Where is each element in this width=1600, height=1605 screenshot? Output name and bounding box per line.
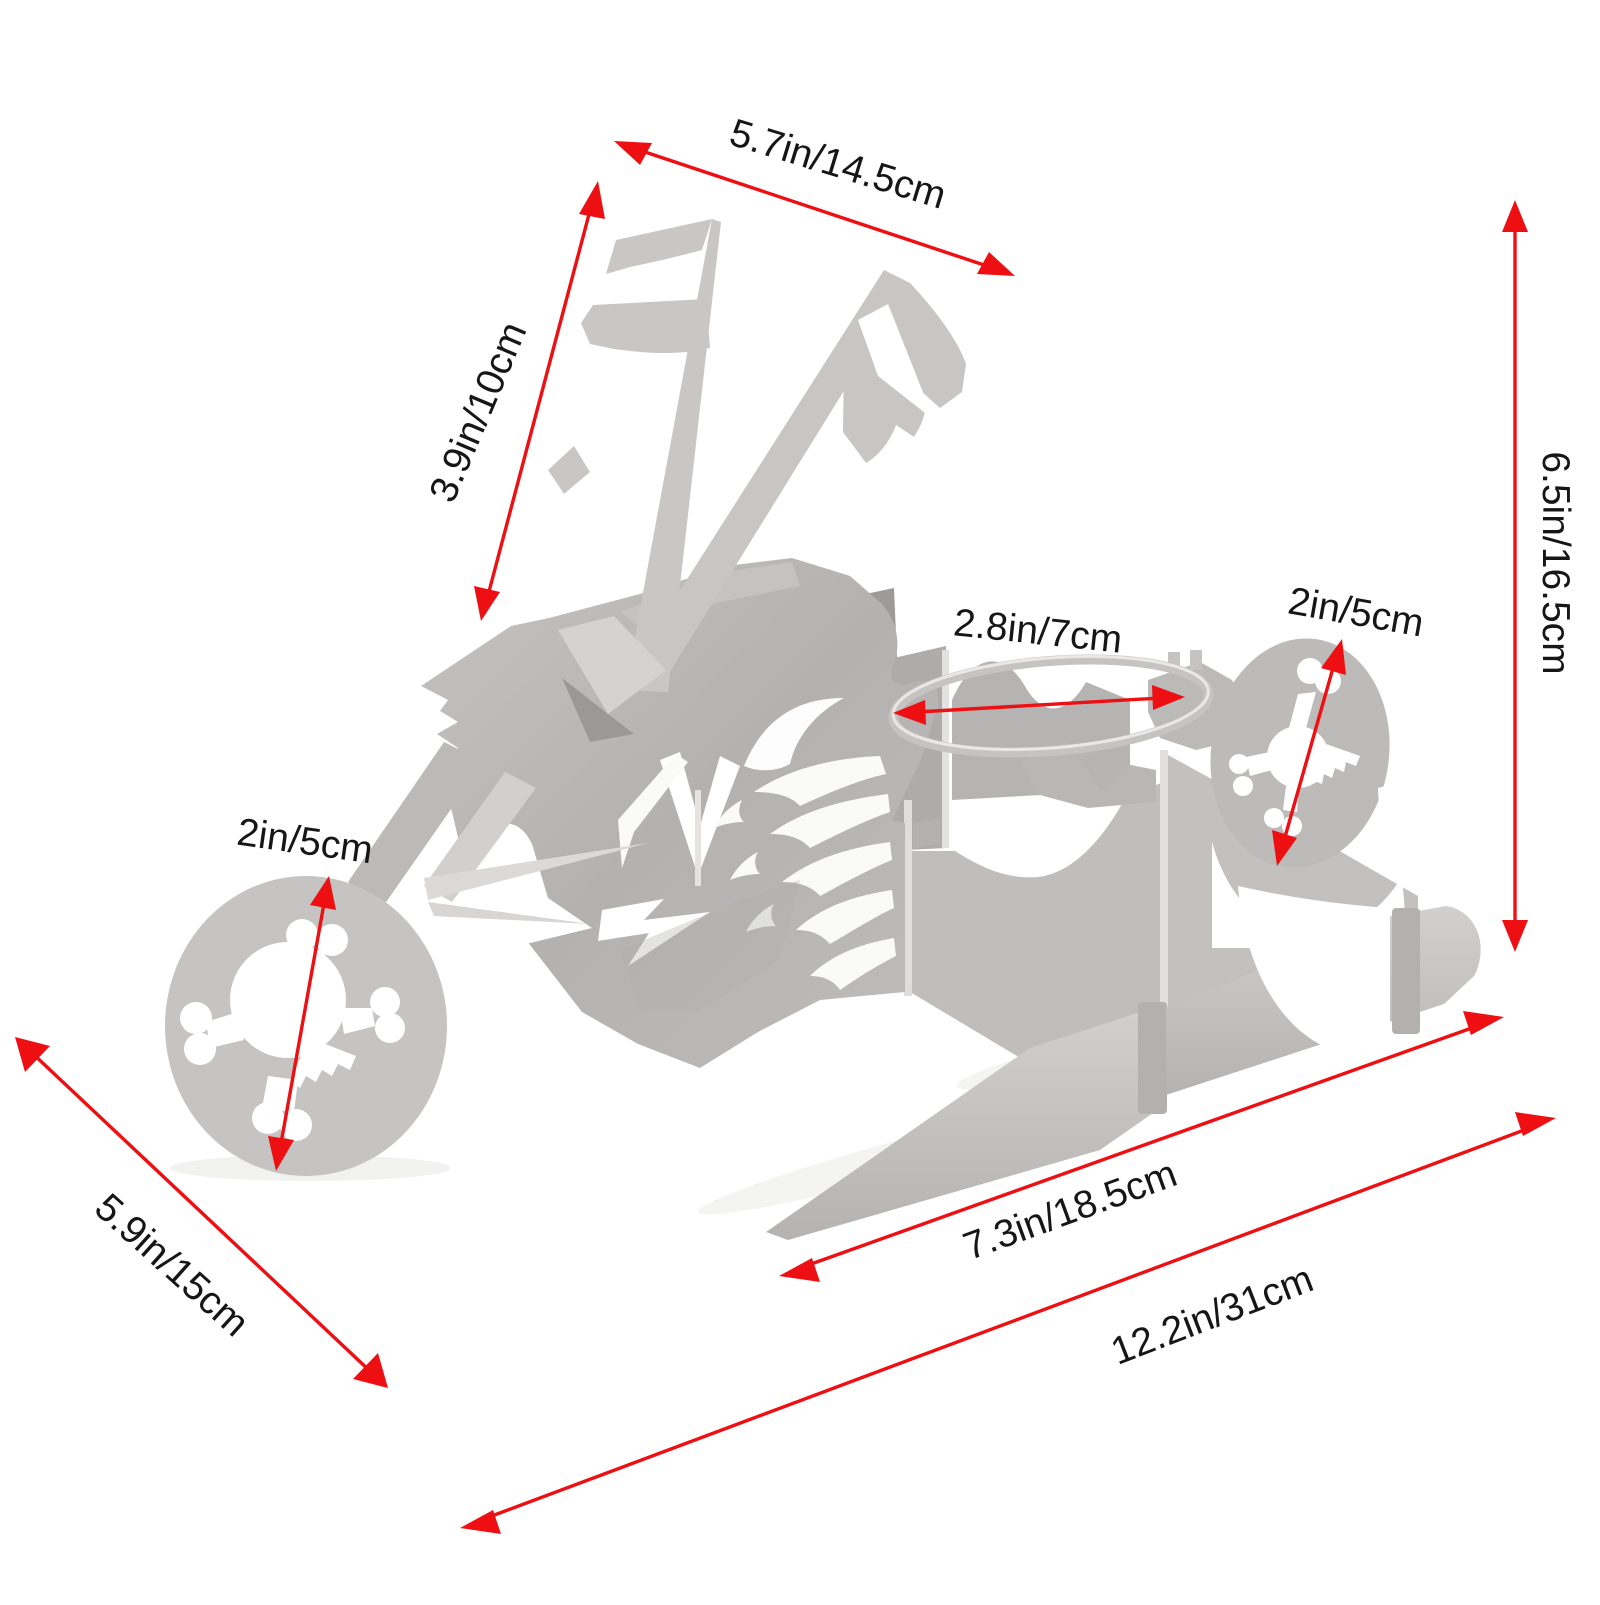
svg-text:6.5in/16.5cm: 6.5in/16.5cm <box>1534 451 1577 674</box>
